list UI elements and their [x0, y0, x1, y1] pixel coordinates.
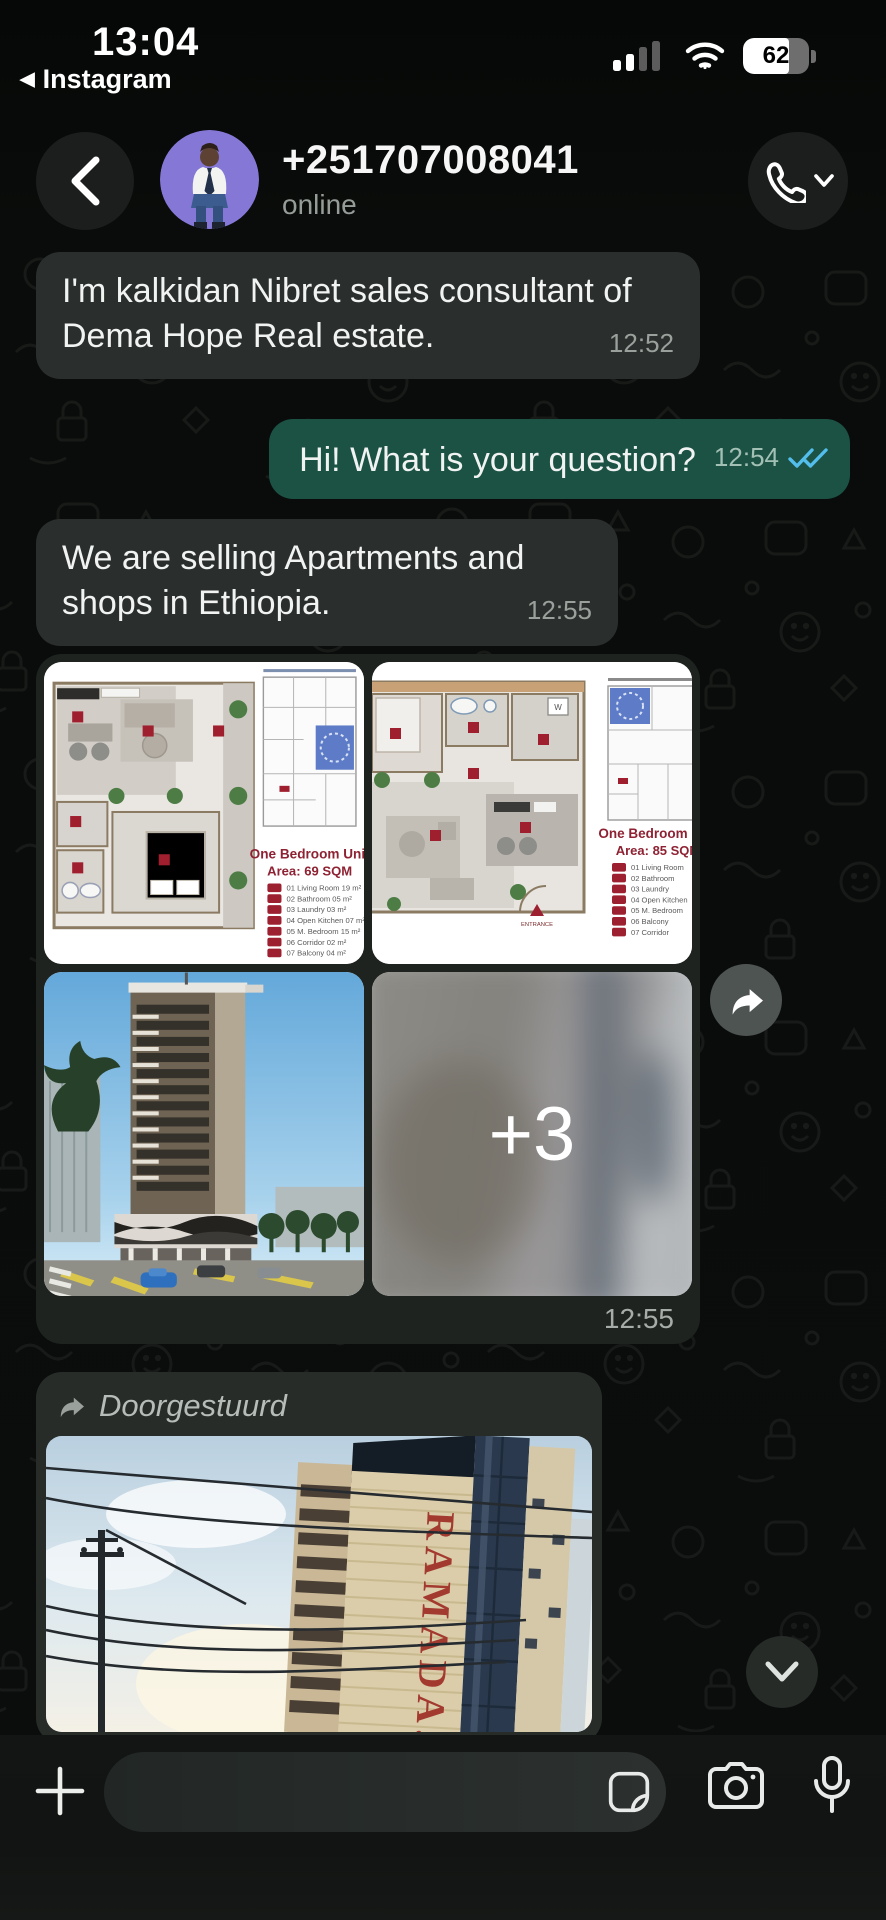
legend-row: 01 Living Room	[631, 863, 684, 872]
ramada-building-image: RAMADA.	[46, 1436, 592, 1732]
forward-button[interactable]	[710, 964, 782, 1036]
floorplan-image: One Bedroom Unit Area: 69 SQM 01 Living …	[44, 662, 364, 964]
attach-button[interactable]	[28, 1759, 92, 1823]
message-text: I'm kalkidan Nibret sales consultant of …	[62, 272, 632, 355]
composer-bar	[0, 1735, 886, 1920]
svg-text:W: W	[554, 703, 562, 712]
forwarded-photo[interactable]: RAMADA.	[46, 1436, 592, 1732]
album-message: One Bedroom Unit Area: 69 SQM 01 Living …	[36, 654, 700, 1344]
sticker-button[interactable]	[605, 1768, 653, 1816]
plan-area: Area: 85 SQM	[616, 843, 692, 858]
chevron-down-icon	[814, 174, 834, 188]
mic-button[interactable]	[812, 1755, 852, 1817]
status-time: 13:04	[92, 20, 199, 65]
plus-icon	[34, 1765, 86, 1817]
legend-row: 03 Laundry	[631, 885, 669, 894]
message-time: 12:55	[527, 588, 592, 633]
album-tile-more-photos[interactable]: +3	[372, 972, 692, 1296]
album-tile-floorplan-69sqm[interactable]: One Bedroom Unit Area: 69 SQM 01 Living …	[44, 662, 364, 964]
album-tile-floorplan-85sqm[interactable]: W	[372, 662, 692, 964]
plan-title: One Bedroom Unit	[598, 826, 692, 841]
legend-row: 04 Open Kitchen	[631, 895, 688, 904]
legend-row: 04 Open Kitchen 07 m²	[287, 916, 364, 925]
contact-name: +251707008041	[282, 138, 579, 183]
battery-icon: 62	[743, 38, 816, 74]
forwarded-label-row: Doorgestuurd	[46, 1382, 592, 1436]
legend-row: 06 Corridor 02 m²	[287, 938, 347, 947]
camera-icon	[706, 1761, 766, 1811]
forward-arrow-icon	[56, 1393, 86, 1419]
sticker-icon	[607, 1770, 651, 1814]
forwarded-message[interactable]: Doorgestuurd	[36, 1372, 602, 1744]
call-button[interactable]	[748, 132, 848, 230]
read-receipt-icon	[788, 447, 828, 469]
phone-icon	[762, 159, 806, 203]
scroll-to-bottom-button[interactable]	[746, 1636, 818, 1708]
back-button[interactable]	[36, 132, 134, 230]
camera-button[interactable]	[706, 1761, 766, 1811]
contact-info[interactable]: +251707008041 online	[282, 138, 579, 221]
legend-row: 07 Balcony 04 m²	[287, 949, 347, 958]
legend-row: 07 Corridor	[631, 928, 669, 937]
entrance-label: ENTRANCE	[521, 922, 553, 928]
chevron-left-icon	[68, 155, 102, 207]
back-to-app-icon: ◀	[20, 66, 35, 93]
plan-area: Area: 69 SQM	[267, 863, 352, 878]
online-status: online	[282, 189, 579, 221]
message-in-2[interactable]: We are selling Apartments and shops in E…	[36, 519, 618, 646]
message-time: 12:54	[714, 435, 779, 480]
message-time: 12:52	[609, 321, 674, 366]
message-input-pill[interactable]	[104, 1752, 666, 1832]
legend-row: 02 Bathroom 05 m²	[287, 894, 353, 903]
legend-row: 03 Laundry 03 m²	[287, 905, 347, 914]
legend-row: 05 M. Bedroom 15 m²	[287, 927, 361, 936]
status-icons: 62	[613, 38, 816, 74]
legend-row: 02 Bathroom	[631, 874, 674, 883]
message-out-1[interactable]: Hi! What is your question? 12:54	[269, 419, 850, 499]
whatsapp-chat-screen: 13:04 ◀ Instagram 62	[0, 0, 886, 1920]
legend-row: 06 Balcony	[631, 917, 669, 926]
cellular-signal-icon	[613, 41, 667, 71]
album-tile-building-photo[interactable]	[44, 972, 364, 1296]
chevron-down-icon	[765, 1661, 799, 1683]
message-text: We are selling Apartments and shops in E…	[62, 539, 524, 622]
forwarded-label: Doorgestuurd	[99, 1388, 287, 1424]
back-to-app-link[interactable]: ◀ Instagram	[20, 64, 172, 95]
message-time: 12:55	[604, 1303, 674, 1335]
wifi-icon	[685, 41, 725, 71]
avatar[interactable]	[160, 130, 259, 229]
message-input[interactable]	[104, 1752, 666, 1832]
message-text: Hi! What is your question?	[299, 438, 696, 483]
battery-nub	[811, 50, 816, 63]
microphone-icon	[812, 1755, 852, 1817]
battery-percent: 62	[763, 42, 790, 70]
avatar-image	[160, 130, 259, 229]
share-arrow-icon	[726, 983, 766, 1017]
message-in-1[interactable]: I'm kalkidan Nibret sales consultant of …	[36, 252, 700, 379]
legend-row: 01 Living Room 19 m²	[287, 883, 362, 892]
legend-row: 05 M. Bedroom	[631, 906, 683, 915]
plan-title: One Bedroom Unit	[250, 846, 364, 861]
back-to-app-label: Instagram	[43, 64, 172, 95]
building-render-image	[44, 972, 364, 1296]
more-photos-count: +3	[372, 972, 692, 1296]
floorplan-image: W	[372, 662, 692, 964]
